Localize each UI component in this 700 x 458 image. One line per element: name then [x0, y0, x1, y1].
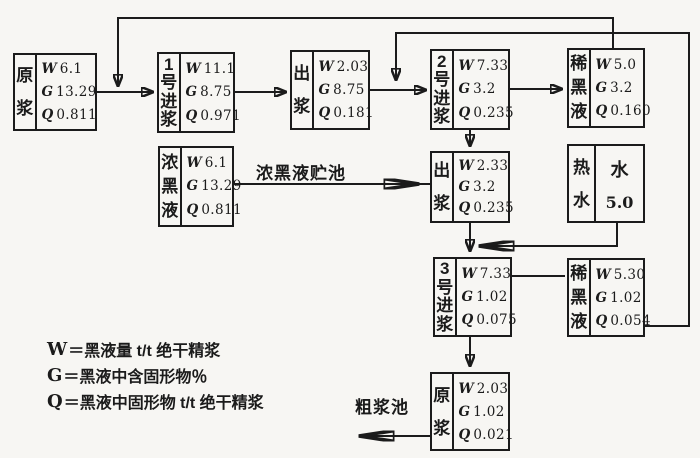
hot-water-amount: 5.0	[606, 193, 634, 212]
box-stage2-outlet: 出浆 W2.33 G3.2 Q0.235	[430, 151, 510, 223]
value-row: W6.1	[187, 155, 242, 171]
value-row: Q0.054	[596, 313, 651, 329]
value-row: G3.2	[459, 179, 514, 195]
box-dilute-liquor-1: 稀黑液 W5.0 G3.2 Q0.160	[567, 48, 645, 128]
value-row: W2.03	[459, 381, 514, 397]
value-row: G1.02	[459, 404, 514, 420]
legend-line-w: W＝黑液量 t/t 绝干精浆	[47, 336, 264, 362]
box-stage3-feed: 3号进浆 W7.33 G1.02 Q0.075	[433, 257, 512, 337]
hotwater-line	[484, 223, 617, 246]
coarse-pulp-pond-label: 粗浆池	[355, 393, 409, 418]
value-row: G3.2	[596, 80, 651, 96]
legend: W＝黑液量 t/t 绝干精浆 G＝黑液中含固形物％ Q＝黑液中固形物 t/t 绝…	[47, 336, 264, 414]
value-row: G1.02	[462, 289, 517, 305]
value-row: W7.33	[462, 266, 517, 282]
box-raw-pulp-out: 原浆 W2.03 G1.02 Q0.021	[430, 372, 510, 451]
value-row: W7.33	[459, 58, 514, 74]
box-stage1-feed: 1号进浆 W11.1 G8.75 Q0.971	[157, 52, 235, 133]
storage-pond-label: 浓黑液贮池	[256, 159, 346, 184]
box-label: 2号进浆	[432, 51, 454, 128]
value-row: Q0.811	[187, 202, 242, 218]
value-row: Q0.021	[459, 427, 514, 443]
box-hot-water: 热水 水 5.0	[567, 144, 645, 223]
value-row: W2.03	[319, 59, 374, 75]
process-flow-diagram: 原浆 W6.1 G13.29 Q0.811 1号进浆 W11.1 G8.75 Q…	[0, 0, 700, 458]
box-strong-liquor: 浓黑液 W6.1 G13.29 Q0.811	[158, 146, 234, 227]
value-row: Q0.181	[319, 105, 374, 121]
box-label: 原浆	[15, 55, 37, 129]
box-label: 出浆	[432, 153, 454, 221]
value-row: G13.29	[187, 178, 242, 194]
value-row: W5.0	[596, 57, 651, 73]
legend-line-q: Q＝黑液中固形物 t/t 绝干精浆	[47, 388, 264, 414]
value-row: G8.75	[186, 84, 241, 100]
value-row: W11.1	[186, 61, 241, 77]
value-row: Q0.075	[462, 312, 517, 328]
value-row: Q0.811	[42, 107, 97, 123]
box-label: 稀黑液	[569, 50, 591, 126]
value-row: Q0.235	[459, 105, 514, 121]
value-row: Q0.235	[459, 200, 514, 216]
box-label: 浓黑液	[160, 148, 182, 225]
box-stage1-outlet: 出浆 W2.03 G8.75 Q0.181	[290, 50, 370, 130]
value-row: W5.30	[596, 267, 651, 283]
box-dilute-liquor-2: 稀黑液 W5.30 G1.02 Q0.054	[567, 258, 645, 337]
box-label: 出浆	[292, 52, 314, 128]
legend-line-g: G＝黑液中含固形物％	[47, 362, 264, 388]
box-stage2-feed: 2号进浆 W7.33 G3.2 Q0.235	[430, 49, 510, 130]
box-label: 1号进浆	[159, 54, 181, 131]
box-label: 3号进浆	[435, 259, 457, 335]
value-row: Q0.160	[596, 103, 651, 119]
value-row: G1.02	[596, 290, 651, 306]
hot-water-word: 水	[611, 156, 629, 182]
box-label: 稀黑液	[569, 260, 591, 335]
value-row: G13.29	[42, 84, 97, 100]
value-row: Q0.971	[186, 108, 241, 124]
value-row: W6.1	[42, 61, 97, 77]
box-label: 热水	[569, 146, 596, 221]
box-raw-pulp-1: 原浆 W6.1 G13.29 Q0.811	[13, 53, 97, 131]
value-row: G3.2	[459, 81, 514, 97]
box-label: 原浆	[432, 374, 454, 449]
value-row: G8.75	[319, 82, 374, 98]
value-row: W2.33	[459, 158, 514, 174]
